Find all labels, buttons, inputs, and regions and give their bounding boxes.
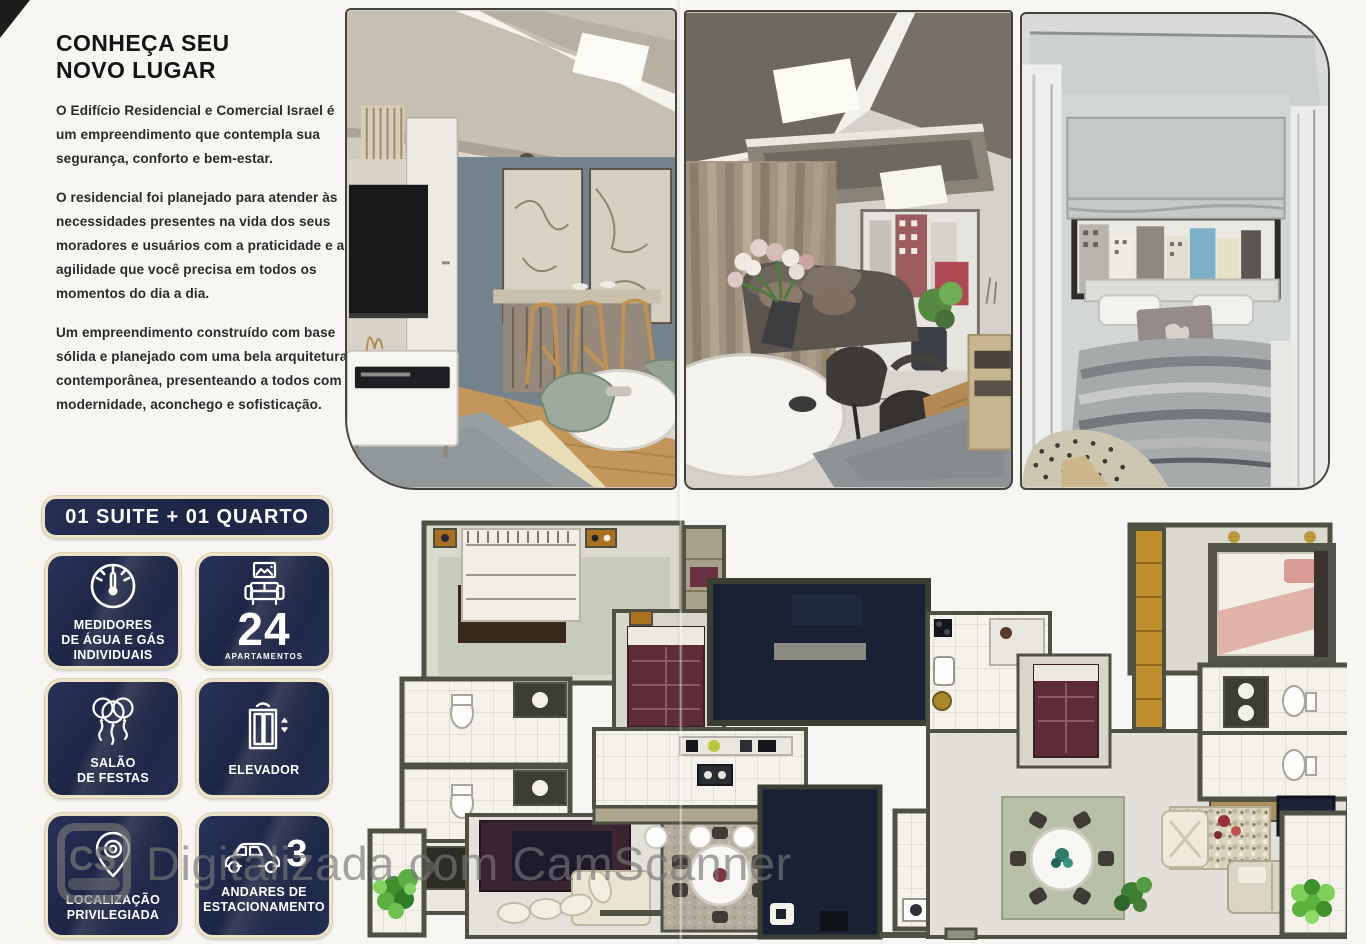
balcony-right bbox=[1282, 813, 1347, 935]
render-photo-living-room-tv bbox=[345, 8, 677, 490]
unit-type-label: 01 SUITE + 01 QUARTO bbox=[65, 506, 309, 529]
hall-elevator-core bbox=[710, 581, 928, 723]
feature-label-location: LOCALIZAÇÃO PRIVILEGIADA bbox=[66, 893, 160, 923]
feature-label-parking: ANDARES DE ESTACIONAMENTO bbox=[203, 885, 325, 915]
water-gas-meter-icon bbox=[86, 559, 140, 611]
feature-label-meters: MEDIDORES DE ÁGUA E GÁS INDIVIDUAIS bbox=[61, 618, 164, 663]
feature-tile-location: LOCALIZAÇÃO PRIVILEGIADA bbox=[45, 813, 181, 938]
dining-right bbox=[1002, 797, 1124, 919]
elevator-icon bbox=[237, 700, 291, 756]
page-title: CONHEÇA SEU NOVO LUGAR bbox=[56, 30, 348, 84]
left-wall bbox=[1022, 64, 1061, 486]
feature-label-party-hall: SALÃO DE FESTAS bbox=[77, 756, 149, 786]
floor-plan bbox=[362, 515, 1347, 940]
stair-core bbox=[760, 787, 880, 937]
feature-tile-apartments: 24 APARTAMENTOS bbox=[196, 553, 332, 669]
balloons-icon bbox=[84, 691, 142, 749]
scan-corner-artifact bbox=[0, 0, 30, 38]
intro-paragraph-3: Um empreendimento construído com base só… bbox=[56, 321, 348, 417]
parking-floors-count: 3 bbox=[286, 836, 307, 872]
living-dining-illustration bbox=[686, 12, 1011, 488]
bedroom-2-right bbox=[1018, 655, 1110, 767]
bedroom-illustration bbox=[1022, 14, 1328, 488]
bathroom-left-1 bbox=[402, 679, 570, 765]
tv-console bbox=[347, 337, 458, 457]
render-photo-living-dining bbox=[684, 10, 1013, 490]
feature-label-elevator: ELEVADOR bbox=[229, 763, 300, 778]
parking-icon-row: 3 bbox=[220, 836, 307, 878]
floor-plan-illustration bbox=[362, 515, 1347, 940]
intro-paragraph-2: O residencial foi planejado para atender… bbox=[56, 186, 348, 306]
wardrobe-right bbox=[1134, 529, 1164, 729]
unit-type-badge: 01 SUITE + 01 QUARTO bbox=[42, 496, 332, 538]
location-pin-icon bbox=[85, 828, 141, 886]
feature-tile-meters: MEDIDORES DE ÁGUA E GÁS INDIVIDUAIS bbox=[45, 553, 181, 669]
intro-column: CONHEÇA SEU NOVO LUGAR O Edifício Reside… bbox=[56, 30, 348, 417]
living-room-tv-illustration bbox=[347, 10, 675, 488]
scanned-brochure-page: { "intro": { "title": "CONHEÇA SEU\nNOVO… bbox=[0, 0, 1366, 944]
bathrooms-right bbox=[1200, 665, 1347, 799]
right-wall bbox=[1290, 106, 1328, 487]
feature-label-apartments: APARTAMENTOS bbox=[225, 652, 303, 661]
page-fold-crease bbox=[676, 0, 683, 944]
feature-tile-parking: 3 ANDARES DE ESTACIONAMENTO bbox=[196, 813, 332, 938]
sofa-frame-icon bbox=[238, 561, 290, 607]
door-stub bbox=[946, 929, 976, 940]
intro-paragraph-1: O Edifício Residencial e Comercial Israe… bbox=[56, 99, 348, 171]
feature-tile-party-hall: SALÃO DE FESTAS bbox=[45, 679, 181, 798]
feature-tile-elevator: ELEVADOR bbox=[196, 679, 332, 798]
apartments-count: 24 bbox=[237, 607, 290, 651]
car-icon bbox=[220, 836, 282, 878]
render-photo-bedroom bbox=[1020, 12, 1330, 490]
window-roman-shade bbox=[1067, 118, 1284, 300]
